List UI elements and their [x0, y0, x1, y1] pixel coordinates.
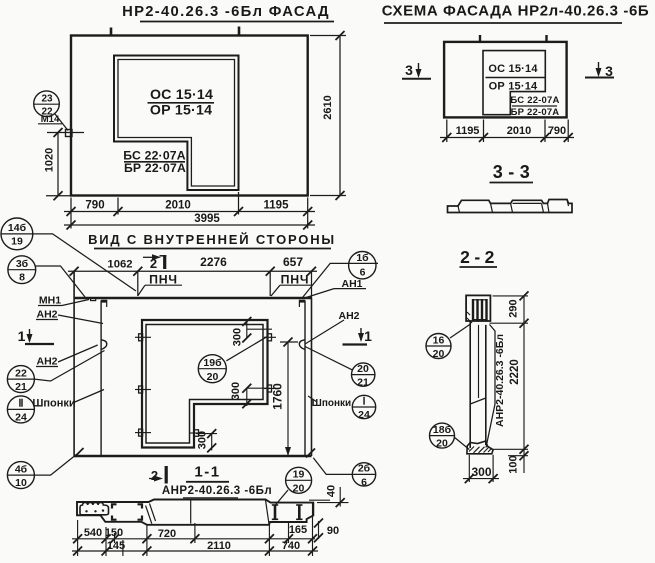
svg-text:2-2: 2-2: [460, 247, 499, 267]
svg-text:90: 90: [327, 525, 339, 537]
svg-text:1-1: 1-1: [194, 464, 220, 481]
svg-text:720: 720: [158, 528, 176, 540]
svg-text:19: 19: [293, 469, 305, 481]
svg-text:ОР 15·14: ОР 15·14: [150, 103, 212, 119]
svg-text:2010: 2010: [165, 200, 191, 212]
svg-text:АНР2-40.26.3 -6Бл: АНР2-40.26.3 -6Бл: [494, 334, 506, 427]
svg-text:Шпонки: Шпонки: [32, 398, 75, 410]
svg-text:БР 22-07А: БР 22-07А: [511, 107, 560, 118]
svg-text:20: 20: [293, 483, 305, 495]
svg-text:1б: 1б: [356, 252, 369, 264]
svg-text:1062: 1062: [107, 259, 132, 271]
svg-text:16: 16: [433, 335, 445, 347]
svg-text:19б: 19б: [203, 357, 222, 369]
svg-text:20: 20: [207, 371, 219, 383]
svg-text:40: 40: [326, 485, 338, 497]
svg-text:2б: 2б: [358, 463, 371, 475]
svg-text:300: 300: [230, 382, 242, 400]
svg-text:АН2: АН2: [338, 310, 359, 322]
svg-text:АН2: АН2: [36, 356, 57, 368]
svg-text:3б: 3б: [16, 258, 29, 270]
svg-text:20: 20: [436, 438, 448, 450]
svg-text:790: 790: [85, 200, 104, 212]
svg-text:21: 21: [15, 381, 27, 393]
svg-text:24: 24: [358, 409, 370, 421]
svg-text:145: 145: [107, 540, 125, 552]
svg-text:1760: 1760: [271, 383, 285, 410]
svg-text:Шпонки: Шпонки: [312, 398, 351, 409]
svg-text:18б: 18б: [433, 424, 452, 436]
svg-text:100: 100: [508, 455, 520, 473]
svg-text:10: 10: [15, 477, 27, 489]
svg-text:ОС 15·14: ОС 15·14: [150, 87, 213, 103]
svg-text:6: 6: [360, 267, 366, 279]
svg-text:8: 8: [19, 272, 25, 284]
svg-text:3-3: 3-3: [493, 162, 536, 182]
svg-text:2220: 2220: [509, 359, 521, 385]
svg-text:СХЕМА ФАСАДА НР2л-40.26.3 -6Б: СХЕМА ФАСАДА НР2л-40.26.3 -6Б: [382, 3, 650, 20]
svg-text:1: 1: [18, 328, 26, 344]
svg-text:ОС 15·14: ОС 15·14: [488, 63, 538, 75]
svg-text:1195: 1195: [456, 125, 480, 137]
svg-text:4б: 4б: [15, 464, 28, 476]
svg-text:АН2: АН2: [36, 309, 57, 321]
svg-text:ВИД С ВНУТРЕННЕЙ СТОРОНЫ: ВИД С ВНУТРЕННЕЙ СТОРОНЫ: [88, 232, 336, 247]
svg-text:300: 300: [471, 465, 491, 479]
svg-text:300: 300: [232, 328, 244, 346]
svg-text:ПНЧ: ПНЧ: [149, 273, 178, 287]
svg-text:22: 22: [15, 368, 27, 380]
svg-text:3995: 3995: [194, 213, 220, 225]
svg-text:1195: 1195: [264, 200, 290, 212]
svg-text:2110: 2110: [207, 540, 231, 552]
svg-text:165: 165: [289, 524, 307, 536]
svg-text:БР 22·07А: БР 22·07А: [124, 161, 186, 175]
svg-text:МН1: МН1: [39, 295, 61, 307]
svg-text:657: 657: [283, 255, 303, 269]
svg-text:24: 24: [15, 412, 27, 424]
svg-text:20: 20: [433, 348, 445, 360]
svg-text:23: 23: [41, 94, 53, 105]
svg-text:1020: 1020: [44, 148, 56, 172]
svg-text:1: 1: [364, 328, 372, 344]
svg-text:20: 20: [357, 363, 369, 375]
svg-text:НР2-40.26.3 -6Бл ФАСАД: НР2-40.26.3 -6Бл ФАСАД: [122, 4, 330, 20]
svg-text:2276: 2276: [200, 255, 227, 269]
svg-text:ПНЧ: ПНЧ: [281, 273, 310, 287]
svg-text:14б: 14б: [8, 222, 27, 234]
svg-text:21: 21: [357, 377, 369, 389]
svg-text:ОР 15·14: ОР 15·14: [489, 81, 538, 93]
svg-text:Ⅰ: Ⅰ: [362, 396, 365, 408]
svg-text:150: 150: [105, 527, 123, 539]
svg-text:3: 3: [405, 62, 413, 78]
svg-text:790: 790: [548, 125, 566, 137]
svg-text:Ⅱ: Ⅱ: [18, 398, 23, 410]
svg-text:6: 6: [361, 477, 367, 489]
svg-text:2610: 2610: [322, 95, 334, 119]
svg-text:19: 19: [11, 236, 23, 248]
svg-text:2010: 2010: [507, 125, 531, 137]
svg-text:БС 22-07А: БС 22-07А: [510, 95, 559, 106]
svg-text:540: 540: [84, 527, 102, 539]
svg-text:АНР2-40.26.3 -6Бл: АНР2-40.26.3 -6Бл: [162, 485, 272, 497]
svg-text:740: 740: [282, 540, 300, 552]
svg-text:290: 290: [508, 299, 520, 317]
